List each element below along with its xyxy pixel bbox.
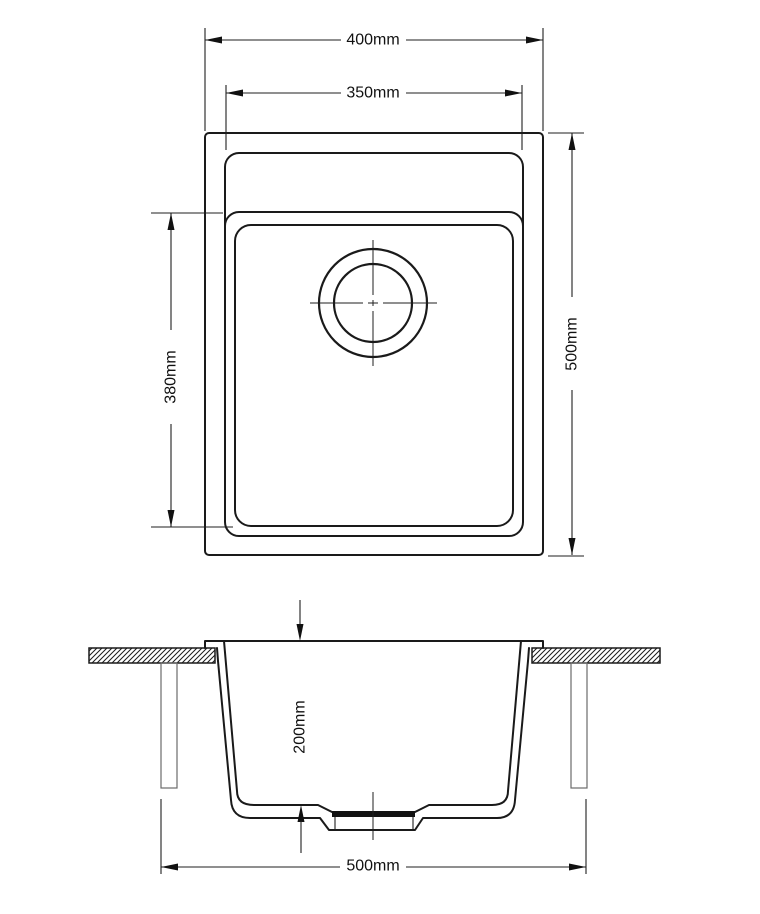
countertop-left <box>89 648 215 663</box>
plan-view <box>205 133 543 555</box>
drain-recess-walls <box>335 817 413 830</box>
sink-outer-edge <box>205 133 543 555</box>
arrowhead-up-icon <box>298 805 305 822</box>
arrowhead-down-icon <box>569 538 576 555</box>
dim-overall-length-label: 500mm <box>564 317 581 370</box>
dim-bowl-opening-width: 350mm <box>226 85 522 151</box>
arrowhead-up-icon <box>569 133 576 150</box>
bowl-rim-top-edge <box>225 212 523 254</box>
arrowhead-left-icon <box>161 864 178 871</box>
arrowhead-right-icon <box>526 37 543 44</box>
arrowhead-left-icon <box>205 37 222 44</box>
dim-cabinet-width-label: 500mm <box>346 858 399 875</box>
sink-rim-inner-edge <box>225 153 523 536</box>
dim-overall-length: 500mm <box>548 133 584 556</box>
countertop-right <box>532 648 660 663</box>
dim-overall-width: 400mm <box>205 28 543 131</box>
cabinet-wall-right <box>571 663 587 788</box>
sink-technical-drawing: 400mm 350mm 500mm 380mm <box>0 0 760 914</box>
bowl-inner-profile <box>224 641 521 812</box>
dim-bowl-depth-label: 200mm <box>292 700 309 753</box>
dim-bowl-length-label: 380mm <box>163 350 180 403</box>
dim-overall-width-label: 400mm <box>346 32 399 49</box>
arrowhead-right-icon <box>569 864 586 871</box>
bowl-inner-edge <box>235 225 513 526</box>
dim-bowl-depth: 200mm <box>292 600 309 853</box>
arrowhead-down-icon <box>297 624 304 641</box>
arrowhead-right-icon <box>505 90 522 97</box>
sink-rim-profile <box>205 641 543 648</box>
section-view <box>89 641 660 840</box>
dim-bowl-length: 380mm <box>151 213 233 527</box>
arrowhead-down-icon <box>168 510 175 527</box>
dim-bowl-opening-width-label: 350mm <box>346 85 399 102</box>
arrowhead-up-icon <box>168 213 175 230</box>
arrowhead-left-icon <box>226 90 243 97</box>
cabinet-wall-left <box>161 663 177 788</box>
drawing-canvas: 400mm 350mm 500mm 380mm <box>0 0 760 914</box>
